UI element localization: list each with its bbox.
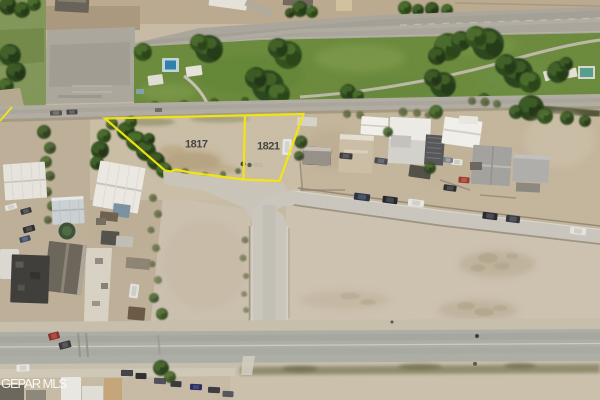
svg-text:GEPAR MLS: GEPAR MLS [1,376,67,391]
svg-text:1817: 1817 [185,139,208,151]
svg-text:1821: 1821 [257,141,280,153]
